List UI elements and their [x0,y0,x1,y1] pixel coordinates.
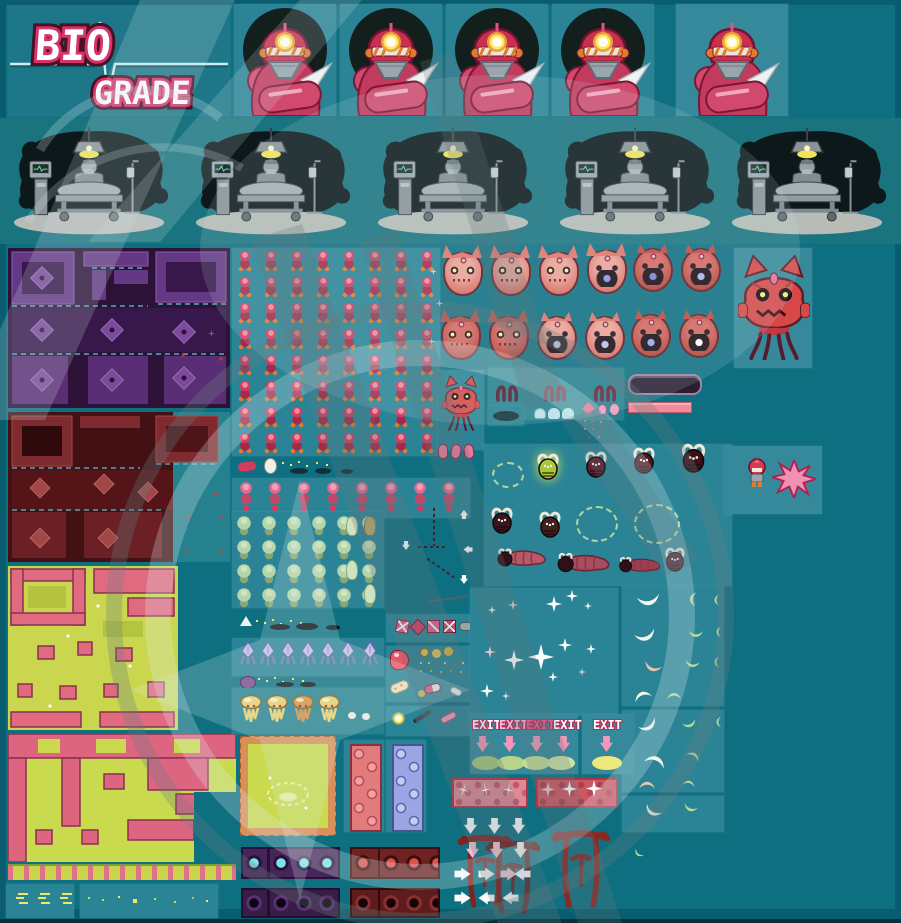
aura-circle [576,506,618,542]
aura-circle [634,504,680,544]
chain-diagonal [427,558,458,580]
lying-hero-sprite [237,461,256,472]
tile-strip-red [350,847,380,879]
crescent-effect [638,778,656,790]
exit-sign: EXIT [553,718,582,732]
worm-creature [618,556,664,574]
tile-strip-purple [268,847,340,879]
arena-tile [240,736,336,836]
worm-creature [556,552,614,574]
glow-bug [536,452,560,480]
x-die-icon [443,620,456,633]
horned-bug [664,546,686,572]
crescent-effect [712,656,720,668]
crescent-effect [714,626,722,638]
spark-dots [258,678,260,680]
crescent-effect [631,847,645,861]
green-creature-rows [232,512,384,608]
yellow-glyph [16,893,30,904]
shadow-ellipse [493,411,519,421]
crystal-alien [240,642,256,666]
bio-grade-logo: BIO BIO GRADE GRADE [8,6,230,116]
tentacle-sprite [542,376,568,402]
pink-capsule [438,444,448,459]
enemy-face [443,252,483,296]
gem-dots [584,420,586,422]
chain-horizontal [418,546,448,548]
green-blob [522,756,550,770]
tiny-arrow-icon [402,541,410,550]
tentacle-sprite [592,376,618,402]
tile-strip-red-dark [350,888,380,918]
tile-strip-red [378,847,440,879]
mini-character [746,458,768,488]
pink-burst [772,460,816,498]
tile-strip-red-dark [378,888,440,918]
egg-sprite [264,458,277,474]
enemy-face-orb [631,314,671,358]
tile-strip-purple [241,847,269,879]
enemy-face-orb [679,314,719,358]
coin-dots [420,662,422,664]
torii-gate [552,820,610,916]
spark-dots [256,620,258,622]
shadow-blob [300,682,316,687]
logo-panel: BIO BIO GRADE GRADE [8,6,230,116]
medic-portrait [235,4,335,116]
green-blob [472,756,500,770]
pink-tilemap [8,734,236,862]
yellow-glyph [38,893,52,904]
horned-bug [632,446,656,474]
pink-capsule [463,443,475,459]
logo-line2: GRADE [93,74,192,112]
mushroom-tile-strip [8,864,236,880]
x-die-icon [395,619,410,634]
shadow-blob [315,468,331,474]
pink-capsule [450,443,462,460]
operating-room-scene [548,121,726,241]
exit-sign: EXIT [526,718,555,732]
jelly-boss-small [442,374,480,432]
boss-creature [738,252,810,362]
enemy-face-orb [537,316,577,360]
tiny-arrow-icon [460,575,468,584]
yellow-dots [88,897,90,899]
shadow-blob [326,625,340,630]
sprite-sheet: BIO BIO GRADE GRADE [0,0,901,923]
blue-jelly-trio [534,408,546,419]
mushroom-creature [240,694,262,722]
operating-room-scene [720,121,898,241]
crystal-alien [280,642,296,666]
enemy-face [441,316,481,360]
hero-walk-grid [232,248,440,456]
tile-strip-purple-dark [241,888,269,918]
chain-vertical [433,508,435,546]
shadow-blob [290,468,308,474]
enemy-face-orb [585,316,625,360]
crescent-effect [688,630,704,640]
shadow-blob [296,623,318,630]
medic-portrait [553,4,653,116]
mushroom-creature [318,694,340,722]
crescent-effect [714,716,722,728]
enemy-face-orb [681,248,721,292]
enemy-face [539,252,579,296]
enemy-face [489,316,529,360]
yellow-blob [592,756,622,770]
crescent-effect [686,591,697,608]
glow-orb-icon [392,712,405,725]
aura-circle [492,462,524,488]
crescent-panel [622,796,724,832]
coin-dots [420,670,422,672]
yellow-tilemap [8,566,178,730]
worm-creature [496,548,550,568]
tile-strip-purple-dark [268,888,340,918]
frame-bottom-dark [0,919,901,923]
operating-room-scene [366,121,544,241]
flask-shine [394,653,399,657]
exit-sign: EXIT [472,718,501,732]
ghost-spark [240,616,252,626]
cocoon-pod [364,516,376,536]
rod-sprite [428,595,468,603]
horned-bug [490,506,514,534]
coins-icon [420,648,429,657]
cocoon-pod [364,584,376,604]
cocoon-pod [346,516,358,536]
medic-portrait [447,4,547,116]
tiny-arrow-icon [464,546,473,554]
mushroom-creature [292,694,314,722]
horned-bug [538,510,562,538]
heart-flask-icon [390,650,409,670]
crescent-effect [666,690,682,700]
crystal-alien [260,642,276,666]
logo-line1: BIO [34,21,113,70]
medic-portrait-no-bg [682,4,782,116]
egg-pair [348,712,356,719]
operating-room-scene [184,121,362,241]
enemy-face [491,252,531,296]
crystal-alien [300,642,316,666]
exit-sign: EXIT [499,718,528,732]
horned-bug [680,442,707,473]
yellow-glyph [60,893,74,904]
green-blob [497,756,525,770]
shadow-blob [276,682,294,687]
crystal-alien [362,642,378,666]
shadow-blob [341,469,353,474]
enemy-face-orb [587,250,627,294]
horned-bug [584,450,608,478]
mushroom-creature [266,694,288,722]
green-blob [547,756,575,770]
spark-dots [282,462,284,464]
purple-tilemap [8,248,230,408]
flesh-strip [452,778,528,808]
crystal-alien [320,642,336,666]
yellow-dots-panel [80,884,218,918]
health-bar [628,374,702,395]
exit-sign-single: EXIT [593,718,622,732]
crystal-alien [340,642,356,666]
operating-room-scene [2,121,180,241]
pink-bar [628,402,692,413]
crescent-effect [712,594,720,606]
enemy-face-orb [633,248,673,292]
red-rock-strip [350,744,382,832]
blue-rock-strip [392,744,424,832]
cocoon-pod [346,560,358,580]
tentacle-sprite [494,376,520,402]
medic-portrait [341,4,441,116]
slash-die-icon [427,620,440,633]
maroon-tilemap [8,412,230,562]
shadow-blob [270,624,290,630]
pink-gem-pair [598,404,607,415]
